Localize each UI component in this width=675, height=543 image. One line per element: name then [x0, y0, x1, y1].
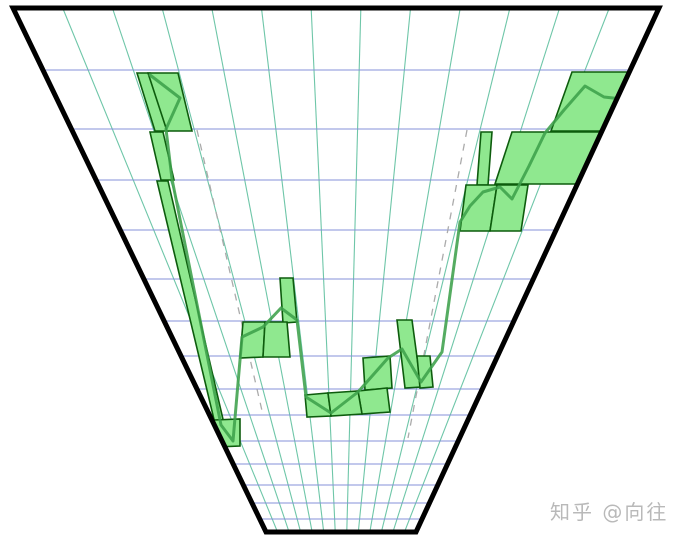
perspective-funnel-chart: 知乎 @向往: [0, 0, 675, 543]
watermark: 知乎 @向往: [550, 496, 668, 525]
chart-canvas: [0, 0, 675, 543]
